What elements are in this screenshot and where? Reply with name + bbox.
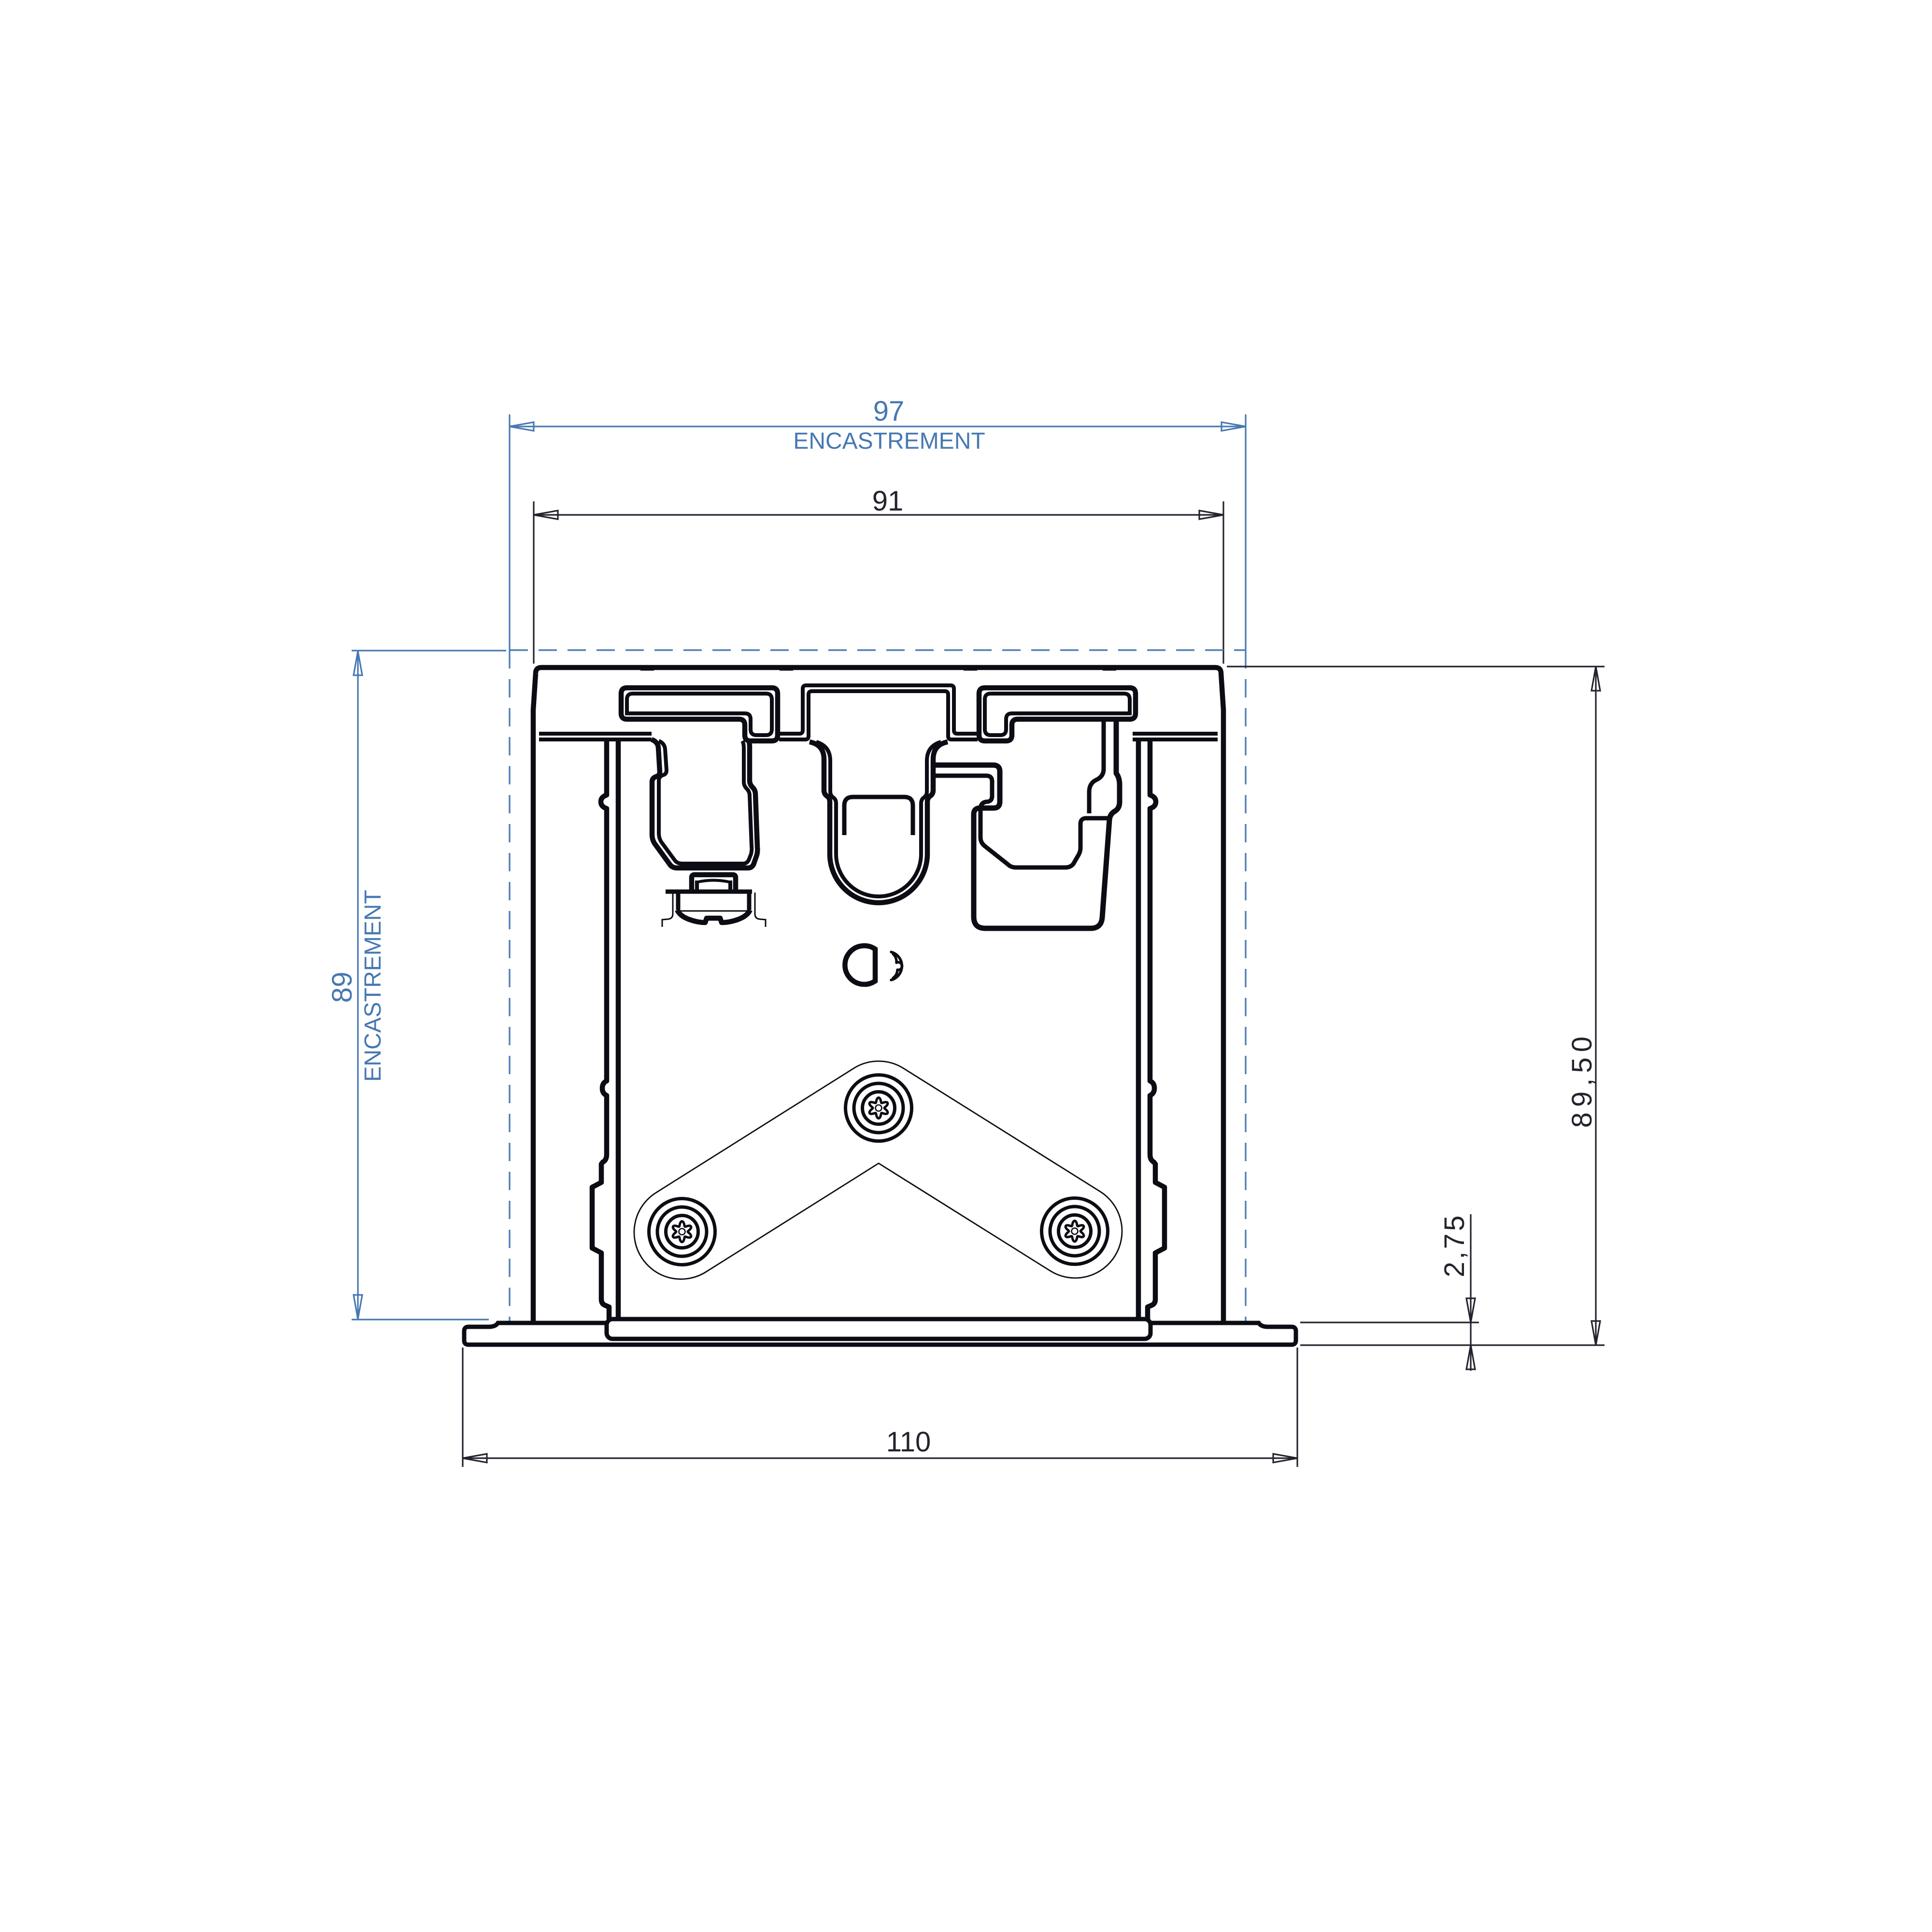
svg-text:110: 110 bbox=[886, 1426, 931, 1458]
svg-text:89,50: 89,50 bbox=[1566, 1031, 1598, 1128]
svg-text:89: 89 bbox=[327, 972, 358, 1003]
svg-text:ENCASTREMENT: ENCASTREMENT bbox=[360, 890, 386, 1081]
svg-text:97: 97 bbox=[873, 396, 905, 427]
svg-text:ENCASTREMENT: ENCASTREMENT bbox=[793, 428, 985, 454]
svg-text:91: 91 bbox=[872, 485, 904, 517]
svg-text:2,75: 2,75 bbox=[1439, 1213, 1470, 1278]
